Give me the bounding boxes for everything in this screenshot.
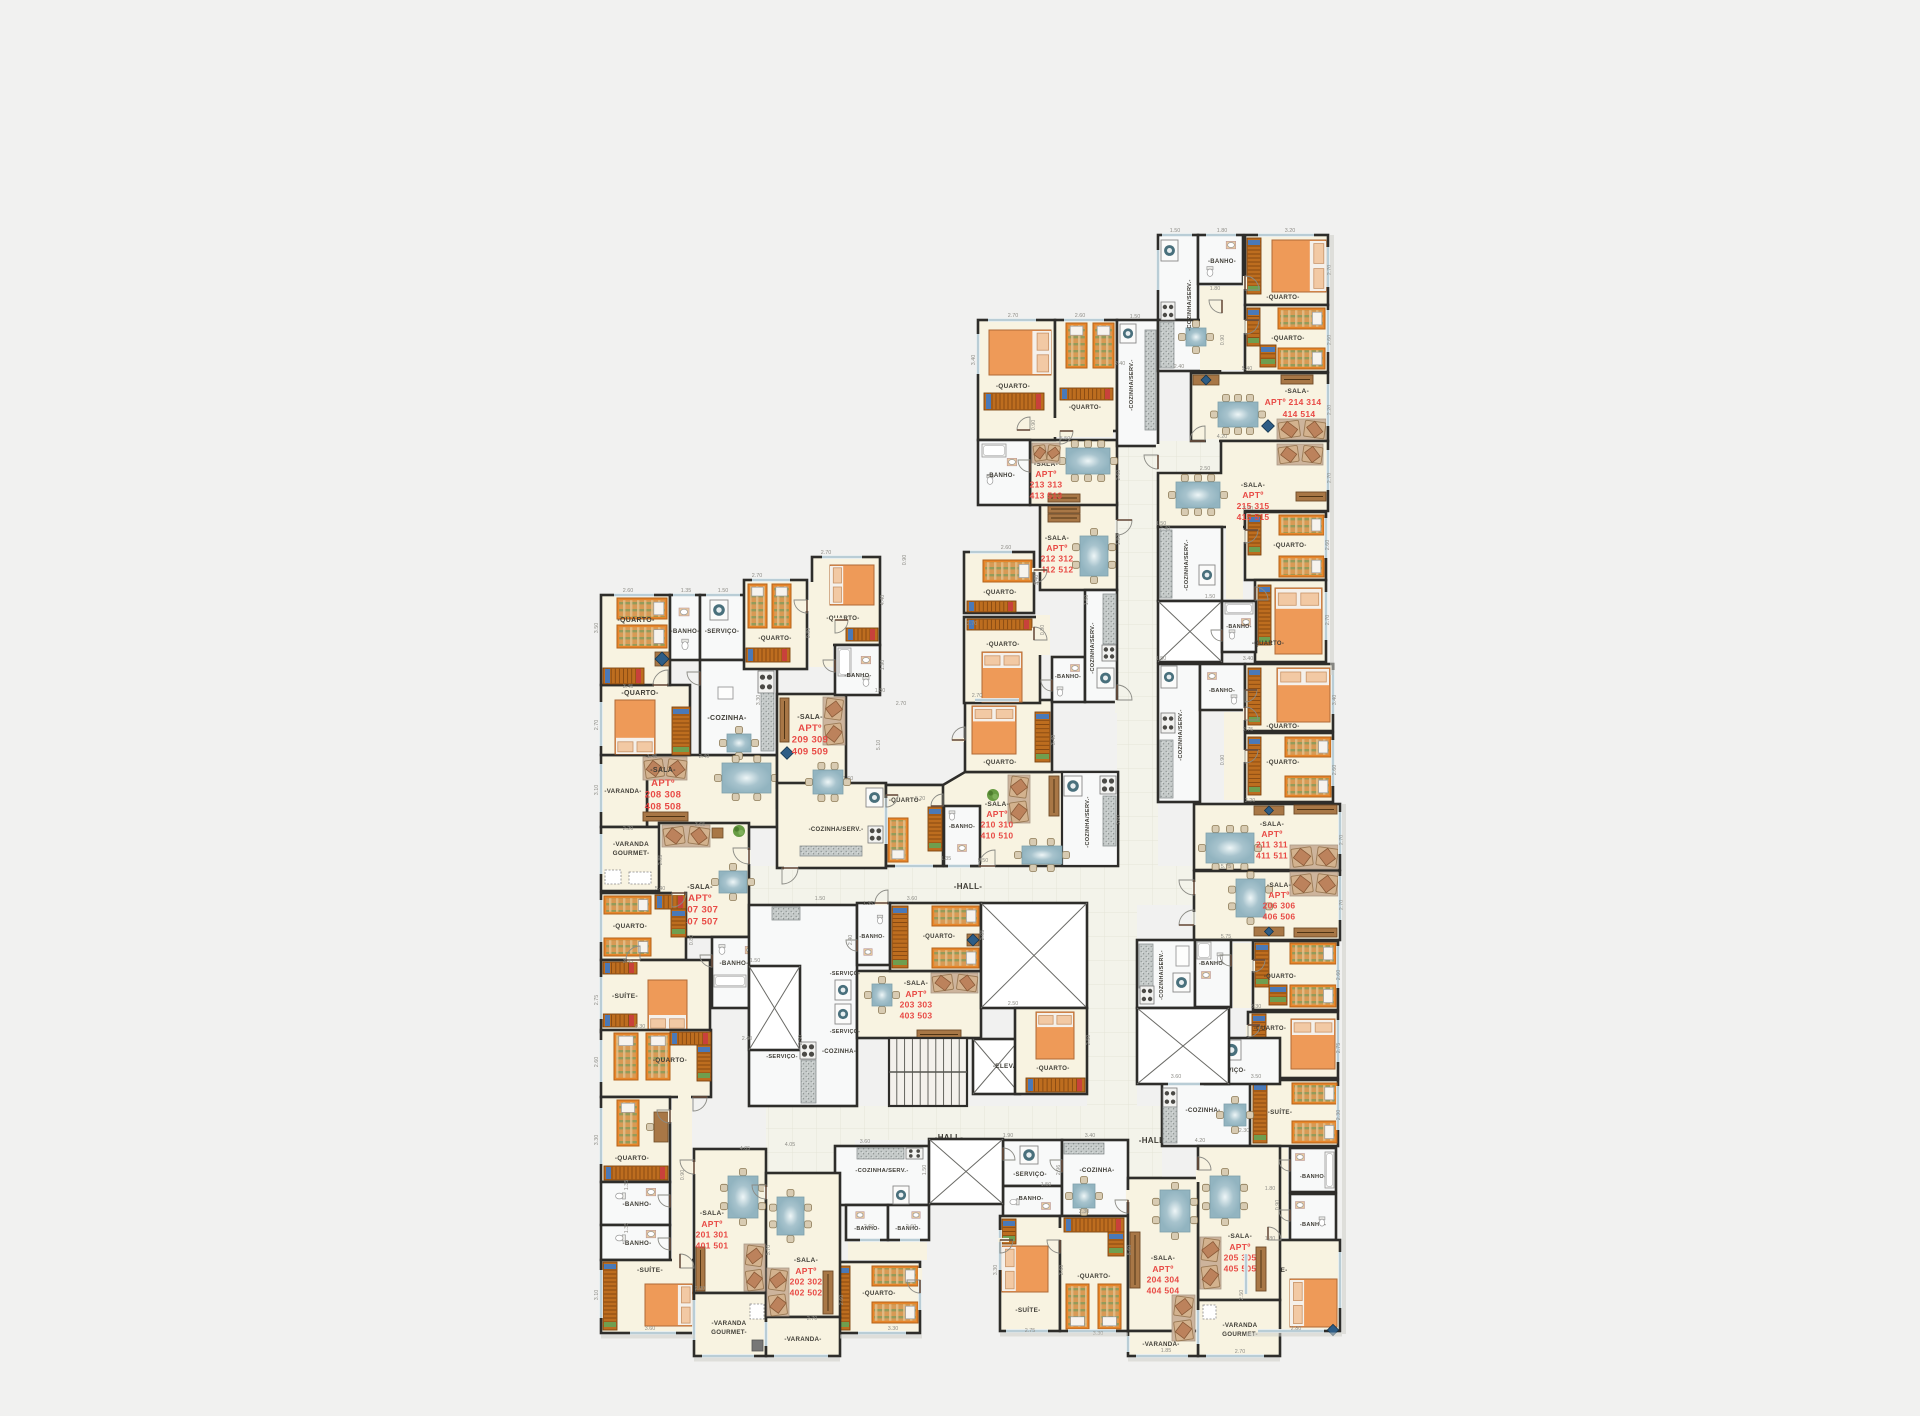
svg-text:-COZINHA/SERV.-: -COZINHA/SERV.-	[809, 827, 864, 833]
svg-text:-SALA-: -SALA-	[1151, 1255, 1175, 1262]
svg-text:414 514: 414 514	[1283, 409, 1316, 419]
svg-text:2.60: 2.60	[1001, 545, 1012, 551]
svg-text:1.50: 1.50	[922, 1165, 928, 1176]
svg-text:APTº: APTº	[1242, 490, 1263, 500]
svg-text:-BANHO-: -BANHO-	[949, 824, 975, 830]
svg-text:3.30: 3.30	[756, 695, 762, 706]
svg-text:-SALA-: -SALA-	[794, 1257, 818, 1264]
svg-text:-QUARTO-: -QUARTO-	[923, 934, 955, 940]
svg-text:-HALL-: -HALL-	[954, 882, 982, 891]
svg-text:401 501: 401 501	[696, 1240, 729, 1250]
svg-text:-COZINHA/SERV.-: -COZINHA/SERV.-	[1187, 279, 1193, 330]
svg-text:-SUÍTE-: -SUÍTE-	[1268, 1108, 1292, 1116]
svg-text:-SERVIÇO-: -SERVIÇO-	[830, 971, 860, 977]
svg-text:1.80: 1.80	[1217, 228, 1228, 234]
svg-text:403 503: 403 503	[900, 1010, 933, 1020]
svg-text:-QUARTO-: -QUARTO-	[1252, 641, 1284, 647]
svg-text:3.30: 3.30	[888, 1326, 899, 1332]
svg-text:413 513: 413 513	[1030, 490, 1063, 500]
svg-text:2.50: 2.50	[1008, 1001, 1019, 1007]
svg-text:1.80: 1.80	[1265, 1236, 1276, 1242]
svg-text:3.60: 3.60	[1059, 1265, 1065, 1276]
svg-text:-BANHO-: -BANHO-	[1226, 624, 1251, 630]
svg-text:2.70: 2.70	[896, 701, 907, 707]
svg-text:201 301: 201 301	[696, 1230, 729, 1240]
svg-text:2.60: 2.60	[1116, 470, 1122, 481]
svg-text:-COZINHA/SERV.-: -COZINHA/SERV.-	[1090, 622, 1096, 673]
svg-text:211 311: 211 311	[1256, 840, 1288, 850]
svg-text:3.45: 3.45	[623, 959, 634, 965]
svg-text:3.30: 3.30	[1251, 1004, 1262, 1010]
svg-text:203 303: 203 303	[900, 1000, 933, 1010]
svg-text:-SALA-: -SALA-	[1285, 388, 1309, 395]
svg-text:-SUÍTE-: -SUÍTE-	[612, 991, 638, 1000]
svg-text:210 310: 210 310	[981, 820, 1014, 830]
svg-text:APTº: APTº	[905, 989, 926, 999]
svg-text:3.60: 3.60	[645, 1326, 656, 1332]
svg-text:-SALA-: -SALA-	[1241, 482, 1265, 489]
svg-text:3.40: 3.40	[1085, 1133, 1096, 1139]
svg-text:-QUARTO-: -QUARTO-	[1271, 335, 1304, 342]
svg-text:-SERVIÇO-: -SERVIÇO-	[1013, 1172, 1047, 1178]
svg-text:0.80: 0.80	[1040, 625, 1046, 636]
svg-text:1.50: 1.50	[1205, 594, 1216, 600]
svg-text:1.35: 1.35	[624, 1223, 630, 1234]
svg-text:209 309: 209 309	[792, 735, 828, 746]
svg-text:3.40: 3.40	[1332, 695, 1338, 706]
svg-text:APTº 214 314: APTº 214 314	[1265, 397, 1322, 407]
svg-text:-QUARTO-: -QUARTO-	[862, 1290, 895, 1297]
svg-text:0.90: 0.90	[1031, 420, 1037, 431]
svg-text:-COZINHA/SERV.-: -COZINHA/SERV.-	[855, 1168, 908, 1174]
svg-text:406 506: 406 506	[1263, 911, 1296, 921]
svg-text:-SALA-: -SALA-	[904, 980, 928, 987]
svg-text:-BANHO-: -BANHO-	[671, 628, 700, 635]
svg-text:-SALA-: -SALA-	[985, 801, 1009, 808]
svg-text:3.65: 3.65	[695, 822, 706, 828]
svg-text:-BANHO-: -BANHO-	[1199, 961, 1225, 967]
svg-text:-COZINHA-: -COZINHA-	[707, 715, 747, 722]
svg-text:5.40: 5.40	[655, 886, 666, 892]
svg-text:2.60: 2.60	[623, 588, 634, 594]
svg-text:-BANHO-: -BANHO-	[623, 1201, 652, 1208]
svg-text:-QUARTO-: -QUARTO-	[1266, 723, 1299, 730]
svg-text:1.50: 1.50	[1170, 228, 1181, 234]
svg-text:204 304: 204 304	[1147, 1275, 1180, 1285]
svg-text:0.80: 0.80	[689, 935, 695, 946]
svg-text:1.90: 1.90	[1003, 1133, 1014, 1139]
svg-text:-BANHO-: -BANHO-	[859, 934, 884, 940]
svg-text:APTº: APTº	[701, 1219, 722, 1229]
svg-text:2.75: 2.75	[594, 995, 600, 1006]
svg-text:1.45: 1.45	[647, 754, 658, 760]
svg-text:0.90: 0.90	[680, 1170, 686, 1181]
svg-text:GOURMET-: GOURMET-	[613, 850, 650, 857]
svg-text:4.20: 4.20	[1195, 1138, 1206, 1144]
svg-text:-QUARTO-: -QUARTO-	[758, 635, 791, 642]
svg-text:2.40: 2.40	[742, 1036, 753, 1042]
svg-text:5.50: 5.50	[1060, 436, 1071, 442]
svg-text:3.60: 3.60	[907, 896, 918, 902]
svg-text:404 504: 404 504	[1147, 1285, 1180, 1295]
svg-text:1.50: 1.50	[1156, 521, 1167, 527]
svg-text:APTº: APTº	[688, 893, 712, 904]
svg-text:3.40: 3.40	[1034, 575, 1040, 586]
svg-text:0.90: 0.90	[1220, 335, 1226, 346]
svg-text:1.35: 1.35	[624, 1180, 630, 1191]
svg-text:APTº: APTº	[798, 723, 822, 734]
svg-text:1.50: 1.50	[1084, 595, 1090, 606]
svg-text:0.90: 0.90	[1275, 1200, 1281, 1211]
svg-text:APTº: APTº	[1152, 1264, 1173, 1274]
svg-text:-COZINHA/SERV.-: -COZINHA/SERV.-	[1178, 709, 1184, 760]
svg-text:5.75: 5.75	[1221, 864, 1232, 870]
svg-text:-QUARTO-: -QUARTO-	[996, 383, 1030, 390]
svg-text:-QUARTO-: -QUARTO-	[621, 690, 659, 697]
svg-text:1.50: 1.50	[718, 588, 729, 594]
svg-text:2.85: 2.85	[658, 855, 664, 866]
svg-text:1.80: 1.80	[1210, 286, 1221, 292]
svg-text:407 507: 407 507	[682, 916, 718, 927]
svg-text:APTº: APTº	[1268, 890, 1289, 900]
svg-text:2.70: 2.70	[972, 693, 983, 699]
svg-text:APTº: APTº	[1046, 543, 1067, 553]
svg-text:-VARANDA-: -VARANDA-	[784, 1336, 821, 1343]
svg-text:APTº: APTº	[795, 1266, 816, 1276]
svg-text:2.70: 2.70	[821, 550, 832, 556]
svg-text:4.30: 4.30	[635, 1024, 646, 1030]
svg-text:-BANHO-: -BANHO-	[1016, 1196, 1043, 1202]
svg-text:2.60: 2.60	[1332, 765, 1338, 776]
svg-text:-QUARTO-: -QUARTO-	[1266, 294, 1299, 301]
svg-text:2.50: 2.50	[1200, 466, 1211, 472]
svg-text:-COZINHA-: -COZINHA-	[822, 1049, 856, 1055]
svg-text:5.75: 5.75	[1221, 934, 1232, 940]
svg-text:1.50: 1.50	[815, 896, 826, 902]
svg-text:-QUARTO-: -QUARTO-	[983, 759, 1016, 766]
svg-text:415 515: 415 515	[1237, 512, 1270, 522]
svg-text:APTº: APTº	[1261, 829, 1282, 839]
svg-text:-COZINHA/SERV.-: -COZINHA/SERV.-	[1184, 539, 1190, 590]
svg-text:1.35: 1.35	[681, 588, 692, 594]
svg-text:3.10: 3.10	[594, 785, 600, 796]
svg-text:-SALA-: -SALA-	[650, 767, 676, 774]
svg-text:-BANHO-: -BANHO-	[623, 1240, 652, 1247]
svg-text:4.05: 4.05	[740, 1146, 751, 1152]
svg-text:1.60: 1.60	[843, 776, 854, 782]
svg-text:2.80: 2.80	[695, 1286, 706, 1292]
svg-text:-VARANDA-: -VARANDA-	[604, 788, 641, 795]
svg-text:3.10: 3.10	[594, 1290, 600, 1301]
svg-text:5.60: 5.60	[1127, 1245, 1133, 1256]
svg-text:-SERVIÇO-: -SERVIÇO-	[830, 1029, 860, 1035]
svg-text:1.50: 1.50	[1130, 314, 1141, 320]
svg-text:2.70: 2.70	[1235, 1349, 1246, 1355]
svg-text:410 510: 410 510	[981, 830, 1014, 840]
svg-text:-SUÍTE-: -SUÍTE-	[637, 1265, 663, 1274]
svg-text:2.40: 2.40	[848, 935, 854, 946]
svg-text:-COZINHA-: -COZINHA-	[1185, 1107, 1220, 1114]
svg-text:2.70: 2.70	[807, 1316, 818, 1322]
svg-text:202 302: 202 302	[790, 1277, 823, 1287]
svg-text:-BANHO-: -BANHO-	[987, 473, 1015, 479]
svg-text:-VARANDA: -VARANDA	[1223, 1322, 1258, 1329]
svg-text:2.60: 2.60	[839, 1295, 845, 1306]
svg-text:APTº: APTº	[1229, 1242, 1250, 1252]
svg-text:3.30: 3.30	[993, 1265, 999, 1276]
svg-text:-QUARTO-: -QUARTO-	[613, 923, 647, 930]
svg-text:-QUARTO-: -QUARTO-	[1077, 1273, 1110, 1280]
svg-text:2.30: 2.30	[1336, 1110, 1342, 1121]
svg-text:3.40: 3.40	[1051, 735, 1057, 746]
svg-text:2.70: 2.70	[967, 621, 978, 627]
svg-text:3.20: 3.20	[1285, 228, 1296, 234]
svg-text:1.85: 1.85	[1161, 1348, 1172, 1354]
svg-text:2.05: 2.05	[980, 930, 986, 941]
svg-text:-COZINHA/SERV.-: -COZINHA/SERV.-	[1159, 950, 1165, 1000]
svg-text:-COZINHA/SERV.-: -COZINHA/SERV.-	[1129, 359, 1135, 410]
svg-text:2.20: 2.20	[623, 826, 634, 832]
svg-text:212 312: 212 312	[1041, 554, 1074, 564]
svg-text:3.60: 3.60	[1171, 1074, 1182, 1080]
svg-text:2.60: 2.60	[1336, 970, 1342, 981]
svg-text:2.30: 2.30	[1239, 1128, 1250, 1134]
svg-text:5.10: 5.10	[876, 740, 882, 751]
svg-text:5.40: 5.40	[1242, 366, 1253, 372]
svg-text:2.70: 2.70	[752, 573, 763, 579]
svg-text:-QUARTO-: -QUARTO-	[653, 1057, 687, 1064]
svg-text:2.96: 2.96	[1056, 1165, 1062, 1176]
svg-text:1.80: 1.80	[1116, 535, 1122, 546]
svg-text:3.60: 3.60	[1116, 815, 1122, 826]
svg-text:2.75: 2.75	[1243, 727, 1254, 733]
svg-text:408 508: 408 508	[645, 801, 681, 812]
svg-text:1.80: 1.80	[1265, 1186, 1276, 1192]
svg-text:2.80: 2.80	[1291, 1326, 1302, 1332]
svg-text:3.60: 3.60	[860, 1139, 871, 1145]
svg-text:409 509: 409 509	[792, 746, 828, 757]
svg-text:-BANHO-: -BANHO-	[844, 673, 871, 679]
svg-text:-QUARTO-: -QUARTO-	[1273, 542, 1306, 549]
svg-text:0.90: 0.90	[1220, 755, 1226, 766]
svg-text:-SALA-: -SALA-	[700, 1210, 724, 1217]
svg-text:-VARANDA: -VARANDA	[613, 841, 649, 848]
svg-text:2.70: 2.70	[1008, 313, 1019, 319]
svg-text:402 502: 402 502	[790, 1287, 823, 1297]
svg-text:-QUARTO-: -QUARTO-	[1266, 759, 1299, 766]
svg-text:2.60: 2.60	[906, 1224, 917, 1230]
svg-text:-BANHO-: -BANHO-	[1055, 674, 1081, 680]
svg-text:2.75: 2.75	[1336, 1043, 1342, 1054]
svg-text:3.20: 3.20	[1243, 506, 1254, 512]
svg-text:405 505: 405 505	[1224, 1263, 1257, 1273]
svg-text:1.50: 1.50	[1041, 1182, 1052, 1188]
svg-text:5.70: 5.70	[766, 1245, 772, 1256]
svg-text:3.40: 3.40	[971, 355, 977, 366]
svg-text:213 313: 213 313	[1030, 480, 1063, 490]
svg-text:208 308: 208 308	[645, 790, 681, 801]
svg-text:4.40: 4.40	[880, 595, 886, 606]
svg-text:0.80: 0.80	[806, 628, 812, 639]
svg-text:-QUARTO-: -QUARTO-	[983, 589, 1016, 596]
svg-text:1.80: 1.80	[875, 688, 886, 694]
svg-text:3.20: 3.20	[1245, 798, 1256, 804]
svg-text:4.20: 4.20	[1217, 434, 1228, 440]
svg-text:-QUARTO-: -QUARTO-	[615, 1155, 649, 1162]
svg-text:2.40: 2.40	[1174, 364, 1185, 370]
svg-text:2.70: 2.70	[594, 720, 600, 731]
svg-text:1.50: 1.50	[1156, 656, 1167, 662]
svg-text:-SERVIÇO-: -SERVIÇO-	[766, 1054, 798, 1060]
svg-text:3.50: 3.50	[1251, 1074, 1262, 1080]
svg-text:-SALA-: -SALA-	[687, 884, 713, 891]
svg-text:2.50: 2.50	[798, 1035, 804, 1046]
svg-text:-VARANDA-: -VARANDA-	[1142, 1341, 1179, 1348]
svg-text:2.60: 2.60	[864, 1224, 875, 1230]
svg-text:-SUÍTE-: -SUÍTE-	[1015, 1305, 1040, 1314]
svg-text:2.20: 2.20	[915, 796, 926, 802]
svg-text:GOURMET-: GOURMET-	[711, 1329, 747, 1336]
svg-text:205 305: 205 305	[1224, 1253, 1257, 1263]
svg-text:411 511: 411 511	[1256, 850, 1288, 860]
svg-text:2.40: 2.40	[1115, 361, 1126, 367]
svg-text:-BANHO-: -BANHO-	[1300, 1174, 1326, 1180]
svg-text:-SALA-: -SALA-	[797, 714, 823, 721]
svg-text:APTº: APTº	[1035, 469, 1056, 479]
svg-text:-VARANDA: -VARANDA	[712, 1320, 747, 1327]
svg-text:-SALA-: -SALA-	[1228, 1233, 1252, 1240]
svg-text:3.45: 3.45	[623, 684, 634, 690]
svg-text:-COZINHA-: -COZINHA-	[1079, 1167, 1114, 1174]
svg-text:1.90: 1.90	[880, 660, 886, 671]
svg-text:-SALA-: -SALA-	[1260, 821, 1284, 828]
svg-text:APTº: APTº	[651, 778, 675, 789]
svg-text:3.30: 3.30	[594, 1135, 600, 1146]
svg-text:5.50: 5.50	[978, 858, 989, 864]
svg-text:-SERVIÇO-: -SERVIÇO-	[705, 628, 740, 635]
svg-text:-QUARTO-: -QUARTO-	[1264, 974, 1296, 980]
svg-text:-QUARTO-: -QUARTO-	[1036, 1065, 1069, 1072]
svg-text:1.50: 1.50	[750, 958, 761, 964]
svg-text:207 307: 207 307	[682, 905, 718, 916]
svg-text:-SALA-: -SALA-	[1267, 882, 1291, 889]
svg-text:4.05: 4.05	[785, 1142, 796, 1148]
svg-text:206 306: 206 306	[1263, 901, 1296, 911]
svg-text:2.40: 2.40	[699, 754, 710, 760]
svg-text:1.35: 1.35	[941, 856, 952, 862]
svg-text:3.40: 3.40	[1243, 656, 1254, 662]
svg-text:-QUARTO-: -QUARTO-	[986, 641, 1019, 648]
svg-text:2.50: 2.50	[1086, 1035, 1092, 1046]
svg-text:-QUARTO-: -QUARTO-	[1069, 405, 1101, 411]
svg-text:-BANHO-: -BANHO-	[720, 960, 749, 967]
svg-text:-COZINHA/SERV.-: -COZINHA/SERV.-	[1085, 796, 1091, 847]
svg-text:2.60: 2.60	[594, 1057, 600, 1068]
svg-text:2.50: 2.50	[1239, 1290, 1245, 1301]
svg-text:2.60: 2.60	[1075, 313, 1086, 319]
svg-text:1.35: 1.35	[863, 901, 874, 907]
svg-text:-BANHO-: -BANHO-	[1208, 259, 1236, 265]
svg-text:3.50: 3.50	[594, 623, 600, 634]
svg-text:-BANHO-: -BANHO-	[1209, 688, 1235, 694]
svg-text:-QUARTO-: -QUARTO-	[617, 617, 655, 624]
svg-text:0.90: 0.90	[902, 555, 908, 566]
svg-text:APTº: APTº	[986, 809, 1007, 819]
svg-text:-SALA-: -SALA-	[1045, 535, 1069, 542]
svg-text:2.30: 2.30	[1079, 1209, 1090, 1215]
